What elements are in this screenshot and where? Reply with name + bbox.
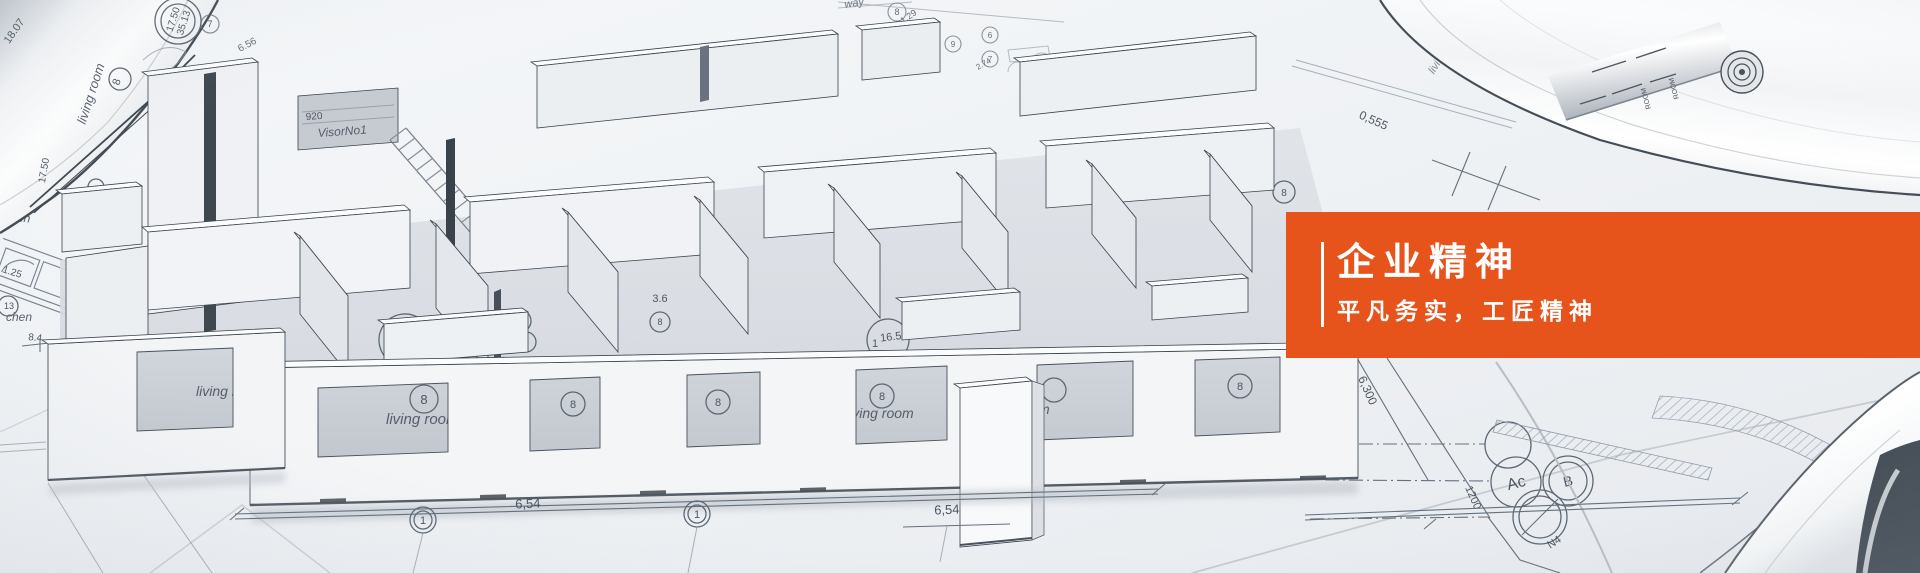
quote-panel: 企业精神 平凡务实，工匠精神 bbox=[1286, 212, 1920, 358]
hero-banner: 6,300 1200 Ac B N4 bbox=[0, 0, 1920, 573]
banner-subtitle: 平凡务实，工匠精神 bbox=[1337, 298, 1598, 326]
banner-title: 企业精神 bbox=[1337, 243, 1521, 285]
accent-bar bbox=[1321, 242, 1324, 327]
